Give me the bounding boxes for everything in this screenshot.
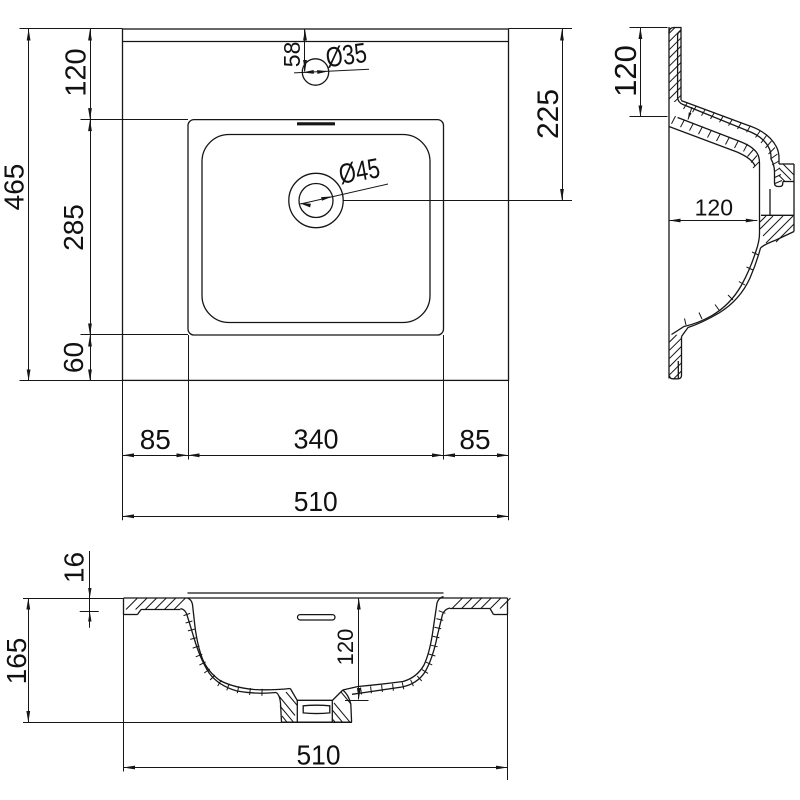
svg-text:225: 225 xyxy=(532,89,565,139)
svg-text:Ø35: Ø35 xyxy=(324,37,369,73)
svg-text:60: 60 xyxy=(58,342,89,373)
svg-text:Ø45: Ø45 xyxy=(336,152,382,190)
svg-text:165: 165 xyxy=(1,638,32,685)
svg-text:85: 85 xyxy=(140,424,171,455)
svg-text:120: 120 xyxy=(695,195,733,221)
svg-text:285: 285 xyxy=(58,204,89,251)
svg-text:340: 340 xyxy=(294,424,339,455)
svg-text:85: 85 xyxy=(459,424,490,455)
svg-text:510: 510 xyxy=(294,486,338,517)
svg-text:120: 120 xyxy=(333,629,358,666)
svg-text:120: 120 xyxy=(60,48,92,96)
svg-text:120: 120 xyxy=(608,45,643,97)
svg-text:16: 16 xyxy=(59,552,90,583)
svg-text:510: 510 xyxy=(297,740,341,771)
svg-text:465: 465 xyxy=(0,164,29,211)
svg-text:58: 58 xyxy=(279,42,305,68)
